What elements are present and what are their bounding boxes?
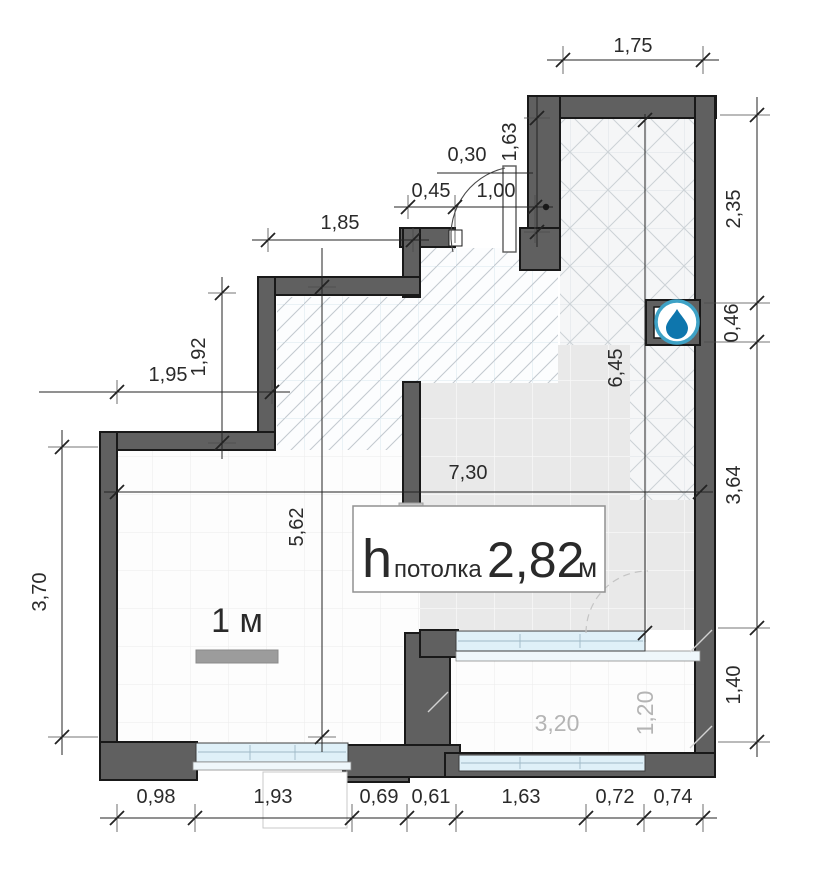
floor-balcony <box>450 652 698 755</box>
wall-kitchen-window-left <box>420 630 458 657</box>
floor-bath-hatch-strip <box>403 297 420 383</box>
wall-left-outer <box>100 432 117 780</box>
entry-door-leaf <box>503 166 516 252</box>
dim-room-width: 7,30 <box>449 462 488 484</box>
wall-step-h1 <box>258 277 420 295</box>
dim-left-step-h: 1,92 <box>188 338 210 377</box>
wall-step-v2 <box>258 277 275 450</box>
balcony-width-label: 3,20 <box>535 710 580 736</box>
left-window-sill <box>193 762 351 770</box>
ceiling-sublabel: потолка <box>394 556 482 583</box>
dim-hall-left-height: 1,63 <box>499 123 521 162</box>
dim-left-height: 3,70 <box>29 573 51 612</box>
dim-top-width: 1,75 <box>614 35 653 57</box>
dim-370-stubs <box>48 447 98 737</box>
dim-bottom-3: 0,61 <box>412 786 451 808</box>
wall-right <box>695 96 715 765</box>
dim-bottom-0: 0,98 <box>137 786 176 808</box>
dim-right-lower: 1,40 <box>723 666 745 705</box>
balcony-depth-label: 1,20 <box>632 691 658 736</box>
floor-hall-crosshatch-lower <box>630 345 700 500</box>
wall-door-corner <box>520 228 560 270</box>
dim-right-upper: 2,35 <box>723 190 745 229</box>
scale-bar-rect <box>196 650 278 663</box>
dim-door-left: 0,45 <box>412 180 451 202</box>
water-drop-icon <box>656 301 698 343</box>
dim-bottom-4: 1,63 <box>502 786 541 808</box>
wall-step-h2 <box>100 432 275 450</box>
scale-label: 1 м <box>211 602 263 640</box>
dim-hall-height: 6,45 <box>605 349 627 388</box>
dim-door-dot <box>543 204 549 210</box>
dim-right-niche: 0,46 <box>721 304 743 343</box>
dim-bottom-6: 0,74 <box>654 786 693 808</box>
floor-plan-canvas: 1,75 1,63 0,30 0,45 1,00 1,85 2,35 0,46 … <box>0 0 815 880</box>
dim-door-offset: 0,30 <box>448 144 487 166</box>
dim-upper-wall: 1,85 <box>321 212 360 234</box>
ceiling-value: 2,82 <box>487 532 584 588</box>
dim-bottom-2: 0,69 <box>360 786 399 808</box>
floor-plan-page: 1,75 1,63 0,30 0,45 1,00 1,85 2,35 0,46 … <box>0 0 815 880</box>
dim-door-width: 1,00 <box>477 180 516 202</box>
dim-bottom-1: 1,93 <box>254 786 293 808</box>
dim-left-step-w: 1,95 <box>149 364 188 386</box>
left-window <box>196 743 348 762</box>
dim-bottom-5: 0,72 <box>596 786 635 808</box>
wall-bottom-left <box>100 742 197 780</box>
floor-bath-hatch-left <box>277 297 403 450</box>
ceiling-symbol: h <box>362 529 392 589</box>
kitchen-window-sill <box>456 651 700 661</box>
dim-right-mid: 3,64 <box>723 466 745 505</box>
ceiling-unit: м <box>578 552 597 583</box>
wall-top <box>543 96 716 118</box>
wall-stub <box>403 382 420 505</box>
dim-room-height: 5,62 <box>286 508 308 547</box>
ceiling-height-label: h потолка 2,82 м <box>353 506 605 592</box>
wall-divider-base <box>345 745 460 777</box>
